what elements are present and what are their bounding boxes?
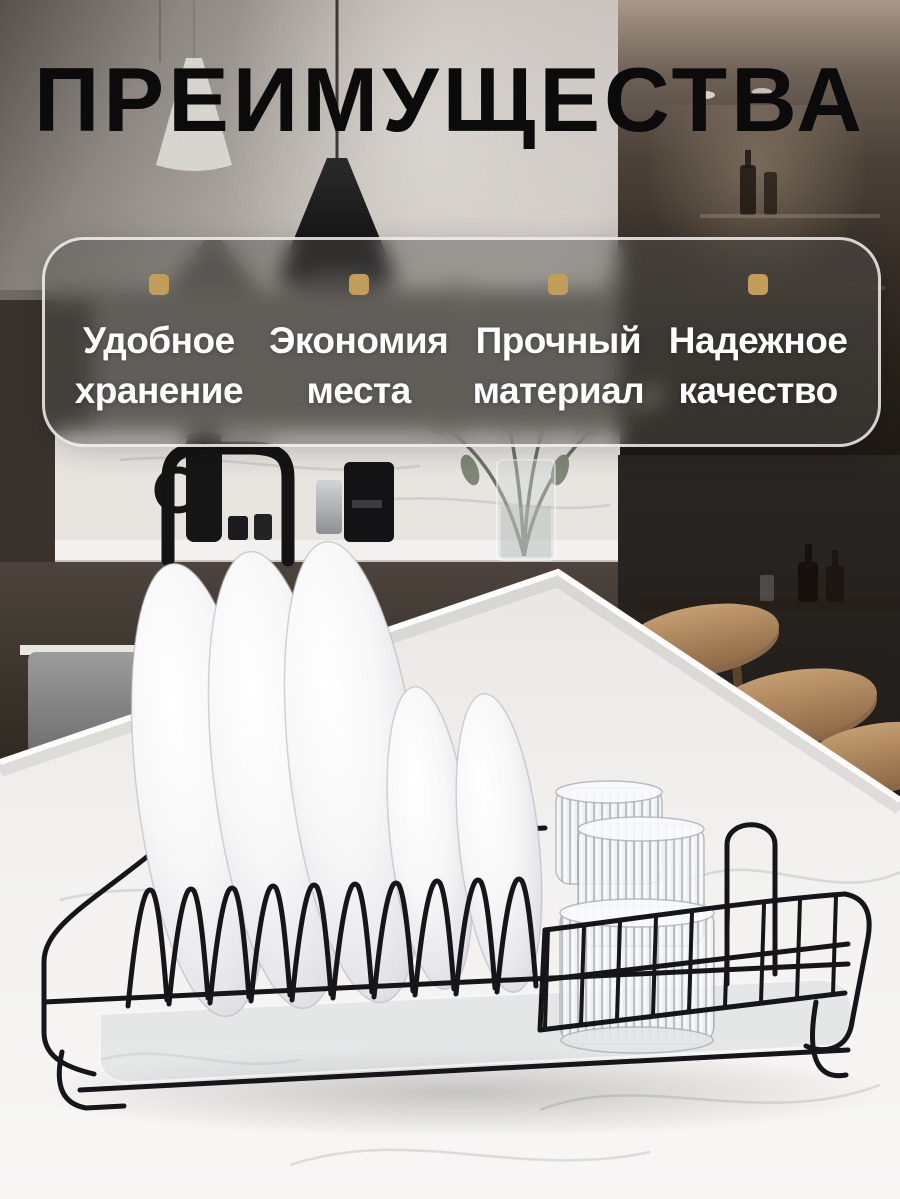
feature-item: Удобное хранение bbox=[59, 274, 259, 417]
gold-square-bullet-icon bbox=[349, 274, 369, 295]
advantages-card: Удобное хранение Экономия места Прочный … bbox=[42, 237, 881, 447]
feature-line2: материал bbox=[473, 366, 645, 416]
feature-label: Прочный материал bbox=[473, 316, 645, 417]
feature-line1: Надежное bbox=[669, 316, 848, 366]
feature-line2: качество bbox=[669, 366, 848, 416]
gold-square-bullet-icon bbox=[548, 274, 568, 295]
feature-label: Удобное хранение bbox=[75, 316, 243, 417]
feature-line1: Удобное bbox=[75, 316, 243, 366]
gold-square-bullet-icon bbox=[748, 274, 768, 295]
feature-line2: места bbox=[269, 366, 448, 416]
wine-bottle bbox=[826, 566, 844, 602]
feature-line1: Экономия bbox=[269, 316, 448, 366]
feature-item: Прочный материал bbox=[459, 274, 659, 417]
gold-square-bullet-icon bbox=[149, 274, 169, 295]
feature-item: Надежное качество bbox=[658, 274, 858, 417]
small-cup bbox=[228, 516, 248, 540]
wine-bottle bbox=[798, 562, 818, 602]
product-infographic: ПРЕИМУЩЕСТВА Удобное хранение Экономия м… bbox=[0, 0, 900, 1199]
small-cup bbox=[254, 514, 272, 540]
page-title: ПРЕИМУЩЕСТВА bbox=[0, 38, 900, 162]
kitchen-scene bbox=[0, 0, 900, 1199]
feature-line1: Прочный bbox=[473, 316, 645, 366]
canister bbox=[316, 480, 342, 534]
feature-label: Надежное качество bbox=[669, 316, 848, 417]
feature-item: Экономия места bbox=[259, 274, 459, 417]
feature-line2: хранение bbox=[75, 366, 243, 416]
feature-label: Экономия места bbox=[269, 316, 448, 417]
